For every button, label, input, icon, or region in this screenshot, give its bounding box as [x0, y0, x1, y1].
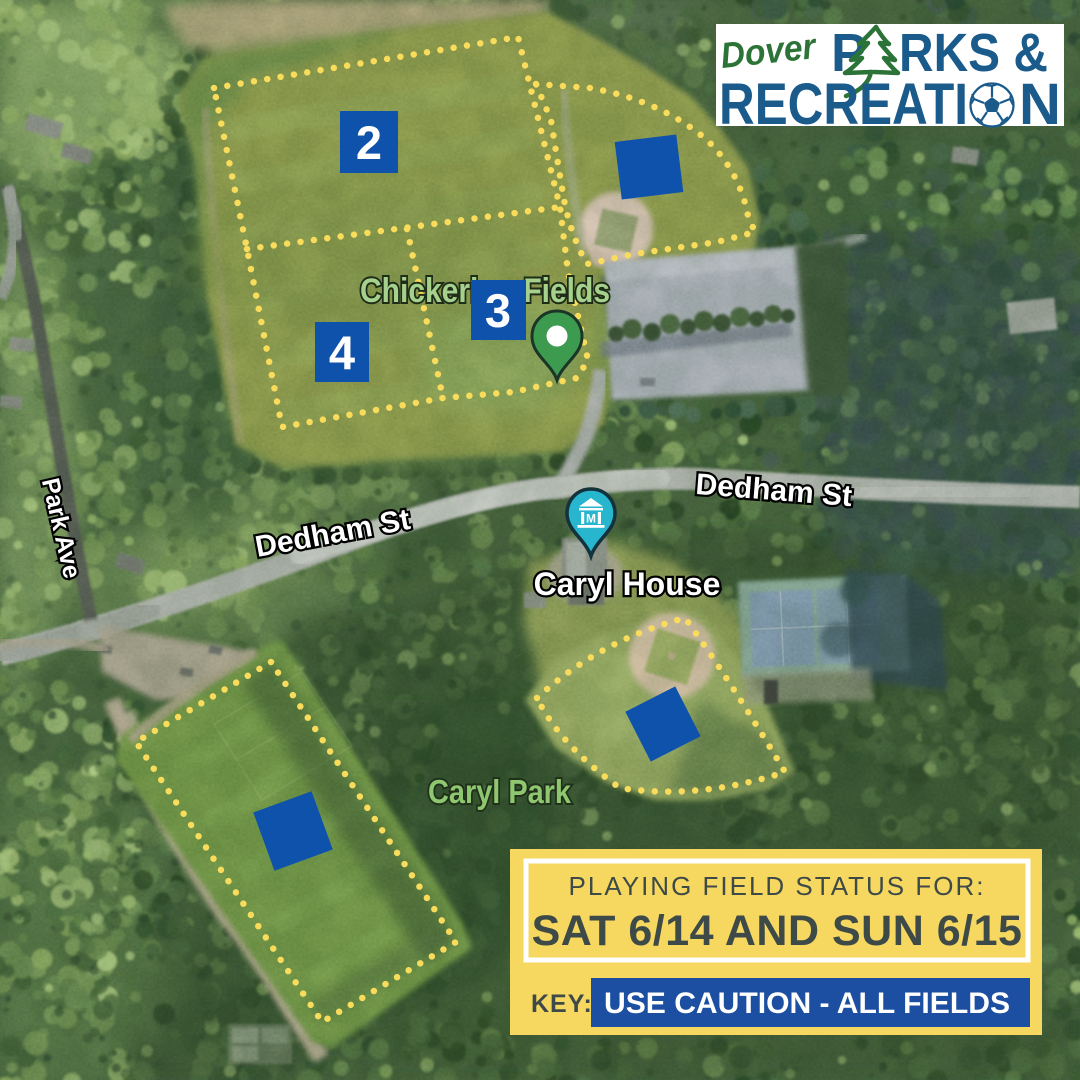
svg-text:Dedham St: Dedham St — [253, 503, 413, 564]
svg-text:KEY:: KEY: — [531, 990, 593, 1018]
svg-text:Caryl Park: Caryl Park — [428, 773, 572, 810]
svg-text:RECREATI: RECREATI — [719, 72, 968, 137]
svg-text:4: 4 — [329, 326, 355, 379]
svg-text:Caryl House: Caryl House — [534, 566, 721, 602]
svg-text:N: N — [1019, 72, 1061, 137]
svg-text:Park Ave: Park Ave — [36, 475, 86, 581]
svg-text:Dedham St: Dedham St — [694, 468, 853, 513]
svg-text:SAT 6/14 AND SUN 6/15: SAT 6/14 AND SUN 6/15 — [532, 907, 1023, 955]
svg-text:PLAYING FIELD STATUS FOR:: PLAYING FIELD STATUS FOR: — [569, 871, 986, 901]
svg-text:USE CAUTION - ALL FIELDS: USE CAUTION - ALL FIELDS — [604, 987, 1010, 1020]
svg-text:M: M — [586, 512, 596, 526]
svg-text:3: 3 — [485, 284, 511, 337]
svg-text:2: 2 — [356, 116, 382, 169]
